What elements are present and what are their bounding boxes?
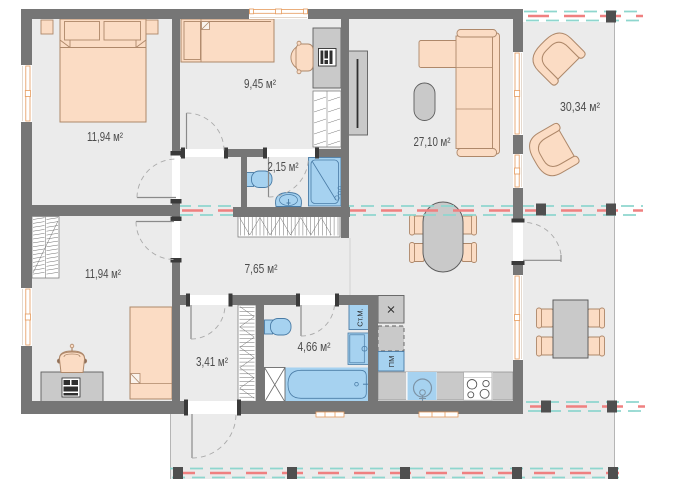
svg-text:3,41 м²: 3,41 м²	[196, 354, 229, 369]
svg-text:7,65 м²: 7,65 м²	[245, 261, 279, 276]
svg-text:11,94 м²: 11,94 м²	[85, 266, 121, 281]
svg-text:2,15 м²: 2,15 м²	[268, 159, 299, 174]
svg-text:4,66 м²: 4,66 м²	[298, 339, 332, 354]
svg-text:27,10 м²: 27,10 м²	[414, 134, 451, 149]
svg-text:Ст.М.: Ст.М.	[356, 308, 365, 326]
svg-text:ПМ: ПМ	[387, 356, 396, 368]
svg-text:30,34 м²: 30,34 м²	[560, 99, 601, 114]
svg-text:9,45 м²: 9,45 м²	[244, 76, 277, 91]
svg-text:11,94 м²: 11,94 м²	[87, 129, 123, 144]
